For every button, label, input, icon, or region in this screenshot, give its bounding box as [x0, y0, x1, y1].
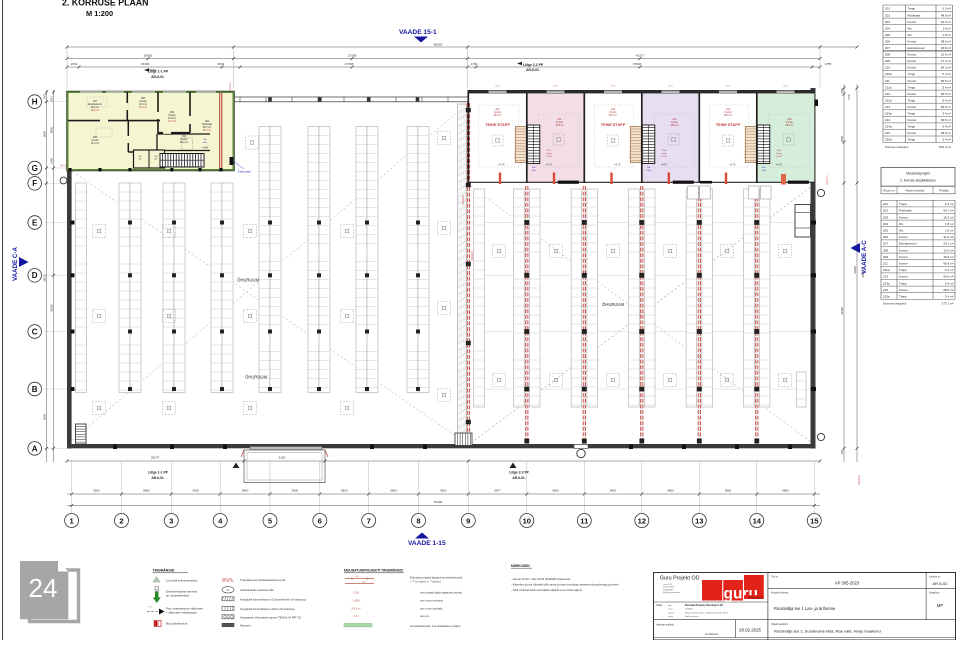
svg-text:211a: 211a — [546, 150, 551, 152]
svg-text:reg nr: reg nr — [668, 609, 673, 611]
svg-text:66.6 m²: 66.6 m² — [670, 124, 678, 127]
svg-text:48.6 m²: 48.6 m² — [941, 13, 951, 17]
svg-text:Kontor: Kontor — [908, 39, 917, 43]
svg-text:66.6 m²: 66.6 m² — [555, 124, 563, 127]
svg-text:1.8 m²: 1.8 m² — [945, 229, 954, 233]
svg-text:aadress: aadress — [668, 612, 674, 614]
svg-text:Trepp: Trepp — [908, 112, 916, 116]
svg-text:TEINE ETAPP: TEINE ETAPP — [716, 123, 741, 127]
svg-text:uue ruumi nimetus: uue ruumi nimetus — [420, 599, 444, 603]
svg-text:209: 209 — [883, 255, 888, 259]
svg-text:52.2 m²: 52.2 m² — [203, 129, 211, 132]
svg-text:66.5 m²: 66.5 m² — [941, 118, 951, 122]
svg-text:Kergplokk konstruktsioon (Colu: Kergplokk konstruktsioon (Columbia-kivi … — [240, 597, 306, 601]
svg-text:87400: 87400 — [434, 500, 443, 504]
svg-text:1591: 1591 — [71, 62, 78, 66]
svg-text:204: 204 — [883, 222, 888, 226]
svg-text:31.0 m²: 31.0 m² — [943, 235, 953, 239]
svg-text:211: 211 — [885, 79, 890, 83]
svg-text:D: D — [32, 271, 38, 280]
svg-text:15: 15 — [810, 516, 819, 525]
svg-text:Puhkeala: Puhkeala — [899, 209, 912, 213]
svg-text:Lai tn 2-74: Lai tn 2-74 — [663, 583, 672, 586]
svg-text:205: 205 — [883, 229, 888, 233]
svg-text:8500: 8500 — [43, 414, 47, 420]
svg-text:207: 207 — [885, 46, 890, 50]
svg-text:r.*** ja rajata vt: **tuletud: r.*** ja rajata vt: **tuletud — [410, 580, 441, 584]
svg-text:50.7 m²: 50.7 m² — [943, 209, 953, 213]
svg-text:19962: 19962 — [144, 54, 153, 58]
svg-text:5.4 m²: 5.4 m² — [945, 268, 954, 272]
svg-text:6kg pulberkustuti: 6kg pulberkustuti — [166, 622, 188, 626]
svg-text:5.4 m²: 5.4 m² — [942, 138, 951, 142]
svg-text:MP: MP — [937, 603, 943, 608]
svg-text:28.02.2025: 28.02.2025 — [739, 628, 762, 633]
svg-text:Ivo Rebane: Ivo Rebane — [705, 632, 719, 636]
svg-text:REI(120): REI(120) — [858, 475, 861, 485]
svg-text:5.3 m²: 5.3 m² — [945, 202, 954, 206]
svg-text:66.5 m²: 66.5 m² — [724, 114, 732, 117]
svg-text:Projekti nimetus:: Projekti nimetus: — [771, 592, 789, 595]
svg-text:Lõige 2-2 PP: Lõige 2-2 PP — [523, 63, 544, 67]
svg-text:5.4 m²: 5.4 m² — [945, 281, 954, 285]
svg-text:37840: 37840 — [633, 62, 642, 66]
svg-text:1-200: 1-200 — [353, 592, 360, 595]
svg-text:12.6 m²: 12.6 m² — [139, 106, 147, 109]
svg-text:5.4 m²: 5.4 m² — [942, 98, 951, 102]
svg-text:Trepp: Trepp — [899, 281, 907, 285]
svg-text:14: 14 — [753, 516, 762, 525]
svg-text:12: 12 — [638, 516, 646, 525]
svg-text:204: 204 — [885, 26, 890, 30]
svg-text:Trepp: Trepp — [908, 98, 916, 102]
svg-text:+4.80: +4.80 — [202, 148, 209, 150]
svg-text:20.1 m²: 20.1 m² — [943, 242, 953, 246]
svg-text:Esindusruum: Esindusruum — [908, 46, 926, 50]
svg-text:Muudatusprojekt: Muudatusprojekt — [906, 172, 930, 176]
svg-text:Roosivälja tee 1 Lao- ja äriho: Roosivälja tee 1 Lao- ja ärihoone — [774, 606, 836, 611]
svg-text:Roosivälja tee 1, Soodevahe kü: Roosivälja tee 1, Soodevahe küla, Rae va… — [774, 629, 881, 634]
svg-text:16.9 m²: 16.9 m² — [943, 255, 953, 259]
svg-text:205: 205 — [885, 33, 890, 37]
svg-text:E: E — [32, 218, 38, 227]
svg-text:202: 202 — [883, 209, 888, 213]
svg-text:4602: 4602 — [495, 86, 501, 88]
svg-text:Vastutav arhitekt:: Vastutav arhitekt: — [656, 624, 675, 627]
svg-text:Trepp: Trepp — [899, 295, 907, 299]
svg-text:+4.70: +4.70 — [614, 164, 621, 167]
svg-text:5800: 5800 — [242, 489, 249, 493]
svg-text:4602: 4602 — [726, 86, 732, 88]
svg-text:Puhkeala: Puhkeala — [908, 13, 921, 17]
svg-text:6800: 6800 — [552, 489, 559, 493]
svg-text:4602: 4602 — [553, 86, 559, 88]
svg-text:5800: 5800 — [341, 489, 348, 493]
svg-text:22m: 22m — [647, 170, 651, 172]
svg-text:17.4 m²: 17.4 m² — [941, 59, 951, 63]
svg-text:TEINE ETAPP: TEINE ETAPP — [601, 123, 626, 127]
svg-text:Staadium:: Staadium: — [929, 592, 940, 595]
svg-text:211a: 211a — [885, 85, 892, 89]
svg-text:Kontor: Kontor — [908, 79, 917, 83]
svg-text:26070: 26070 — [43, 274, 47, 282]
svg-text:202: 202 — [885, 13, 890, 17]
svg-text:12.4 m²: 12.4 m² — [943, 248, 953, 252]
svg-text:4602: 4602 — [668, 86, 674, 88]
svg-text:Kontor: Kontor — [908, 53, 917, 57]
svg-text:A: A — [32, 444, 38, 453]
svg-text:5.4 m²: 5.4 m² — [776, 155, 782, 158]
svg-text:11: 11 — [580, 516, 589, 525]
svg-text:uue ruumi pindala,: uue ruumi pindala, — [420, 607, 443, 611]
svg-text:konstruktsioonid, mis ehitatak: konstruktsioonid, mis ehitatakse II etap… — [410, 624, 461, 628]
svg-text:206: 206 — [885, 39, 890, 43]
svg-text:13: 13 — [695, 516, 703, 525]
svg-text:Trepp: Trepp — [908, 85, 916, 89]
svg-text:9600: 9600 — [50, 127, 54, 133]
svg-text:68.6 m²: 68.6 m² — [941, 131, 951, 135]
svg-text:Ruumi nimetus: Ruumi nimetus — [906, 188, 925, 192]
svg-text:1501: 1501 — [43, 93, 47, 99]
svg-text:Kontor: Kontor — [908, 20, 917, 24]
svg-text:Töö nr:: Töö nr: — [771, 576, 779, 579]
svg-text:- Hoone ±0.00 = abs 39.60 (EH2: - Hoone ±0.00 = abs 39.60 (EH2000 süstee… — [511, 577, 570, 581]
svg-text:AP 305-2023: AP 305-2023 — [835, 581, 860, 586]
svg-text:Kontor: Kontor — [899, 235, 908, 239]
svg-text:31.0 m²: 31.0 m² — [91, 142, 99, 145]
svg-text:1320: 1320 — [841, 88, 844, 94]
svg-text:66.6 m²: 66.6 m² — [943, 262, 953, 266]
svg-text:215a: 215a — [885, 138, 892, 142]
svg-text:Suitsuluukide avamise lüliti: Suitsuluukide avamise lüliti — [240, 588, 274, 592]
svg-text:5800: 5800 — [292, 489, 299, 493]
svg-text:Trepp: Trepp — [776, 152, 782, 155]
svg-text:e-post: e-post — [668, 615, 673, 618]
svg-text:215: 215 — [885, 131, 890, 135]
svg-text:info@guruprojekt.ee: info@guruprojekt.ee — [663, 591, 680, 594]
svg-text:203: 203 — [885, 20, 890, 24]
svg-text:Kolonnaad: Kolonnaad — [238, 169, 251, 173]
svg-text:uus arv: uus arv — [420, 614, 430, 618]
svg-text:1782: 1782 — [471, 62, 478, 66]
svg-text:Ruumi nr: Ruumi nr — [883, 188, 894, 192]
svg-text:30160: 30160 — [50, 304, 54, 312]
svg-text:215: 215 — [883, 288, 888, 292]
svg-text:5800: 5800 — [143, 489, 150, 493]
svg-text:guru: guru — [724, 585, 758, 602]
svg-text:9160: 9160 — [279, 456, 286, 460]
svg-text:212a: 212a — [885, 98, 892, 102]
svg-text:Wc: Wc — [899, 229, 904, 233]
svg-text:206.5 m²: 206.5 m² — [351, 608, 361, 611]
svg-text:24: 24 — [29, 573, 58, 603]
svg-text:2. Korruse eksplikatsioon: 2. Korruse eksplikatsioon — [900, 179, 936, 183]
svg-text:19.2 m²: 19.2 m² — [180, 141, 188, 144]
svg-text:TEINE ETAPP: TEINE ETAPP — [485, 123, 510, 127]
svg-text:C: C — [32, 327, 38, 336]
svg-text:27358: 27358 — [345, 62, 354, 66]
svg-text:8: 8 — [416, 516, 420, 525]
svg-text:Kontor: Kontor — [908, 118, 917, 122]
svg-text:Trepp: Trepp — [908, 72, 916, 76]
svg-text:5.4 m²: 5.4 m² — [546, 155, 552, 158]
svg-text:Wc: Wc — [908, 33, 913, 37]
svg-text:213: 213 — [885, 105, 890, 109]
svg-text:1755: 1755 — [825, 62, 832, 66]
svg-text:Nimi: Nimi — [668, 605, 672, 607]
svg-text:213: 213 — [883, 275, 888, 279]
svg-text:+4.70: +4.70 — [498, 164, 505, 167]
svg-text:Wc: Wc — [155, 159, 158, 161]
svg-text:41377: 41377 — [636, 54, 645, 58]
svg-text:REI(120): REI(120) — [222, 577, 233, 581]
svg-text:9400: 9400 — [840, 136, 844, 142]
svg-text:Kontor: Kontor — [908, 66, 917, 70]
svg-text:PROJEKT: PROJEKT — [749, 595, 764, 599]
svg-text:2.4600: 2.4600 — [352, 600, 360, 603]
svg-text:11560452: 11560452 — [685, 609, 693, 611]
svg-text:G: G — [32, 164, 38, 173]
svg-text:Objekti asukoht:: Objekti asukoht: — [771, 623, 788, 626]
svg-text:MUUDATUSPROJEKTI TINGMÄRGID: MUUDATUSPROJEKTI TINGMÄRGID — [344, 569, 403, 573]
svg-text:12.6 m²: 12.6 m² — [941, 53, 951, 57]
svg-text:Roosiaia Property Developers O: Roosiaia Property Developers OÜ — [685, 604, 724, 607]
svg-text:AR-6-01.: AR-6-01. — [151, 75, 165, 79]
svg-text:Trepp: Trepp — [899, 268, 907, 272]
svg-text:Kergplokk konstruktsioon (Fibo: Kergplokk konstruktsioon (Fibo või analo… — [240, 607, 294, 611]
svg-text:6800: 6800 — [610, 489, 617, 493]
svg-text:213a: 213a — [885, 112, 892, 116]
svg-text:Kontor: Kontor — [899, 275, 908, 279]
svg-text:9: 9 — [466, 516, 470, 525]
svg-text:9 m: 9 m — [148, 607, 152, 609]
svg-text:Trepp: Trepp — [908, 7, 916, 11]
svg-text:33m: 33m — [203, 142, 207, 144]
svg-text:F: F — [32, 179, 37, 188]
svg-text:Trepp: Trepp — [908, 138, 916, 142]
svg-text:5923: 5923 — [93, 489, 100, 493]
svg-text:Wc: Wc — [908, 26, 913, 30]
svg-text:- Kõik mõõdud tuleb kontrollid: - Kõik mõõdud tuleb kontrollida objektil… — [511, 588, 582, 592]
svg-text:5.4 m²: 5.4 m² — [942, 85, 951, 89]
svg-text:210a: 210a — [885, 72, 892, 76]
svg-text:214: 214 — [885, 118, 890, 122]
svg-text:Kontor: Kontor — [908, 92, 917, 96]
svg-text:10: 10 — [523, 516, 531, 525]
svg-text:Kontor: Kontor — [908, 59, 917, 63]
svg-text:5800: 5800 — [193, 489, 200, 493]
svg-text:AR-5-02.: AR-5-02. — [932, 581, 948, 586]
svg-text:+4.70: +4.70 — [546, 164, 553, 167]
svg-text:66.5 m²: 66.5 m² — [609, 114, 617, 117]
svg-text:B: B — [32, 385, 38, 394]
svg-text:212: 212 — [885, 92, 890, 96]
svg-text:41000: 41000 — [853, 266, 857, 274]
svg-text:Kontor: Kontor — [899, 248, 908, 252]
svg-text:20073: 20073 — [151, 456, 160, 460]
svg-text:ÕHURUUM: ÕHURUUM — [602, 302, 624, 307]
svg-text:VAADE C-A: VAADE C-A — [12, 247, 19, 281]
svg-text:2: 2 — [119, 516, 123, 525]
svg-text:Lõige 2-2 PP: Lõige 2-2 PP — [509, 471, 530, 475]
svg-text:7: 7 — [367, 516, 371, 525]
svg-text:+ väljumiste vahekaugus: + väljumiste vahekaugus — [166, 611, 197, 615]
svg-text:Harju maakond, Tallinn, Vabadu: Harju maakond, Tallinn, Vabaduse pst 174… — [685, 611, 728, 614]
svg-text:5700: 5700 — [848, 94, 851, 100]
svg-text:19.2 m²: 19.2 m² — [941, 20, 951, 24]
svg-text:Kontor: Kontor — [908, 131, 917, 135]
svg-text:214a: 214a — [885, 125, 892, 129]
svg-text:REI(120): REI(120) — [462, 195, 465, 205]
svg-text:4602: 4602 — [611, 86, 617, 88]
svg-text:1.8 m²: 1.8 m² — [942, 26, 951, 30]
svg-text:Korruse netopind:: Korruse netopind: — [885, 145, 909, 149]
svg-text:Kontor: Kontor — [899, 255, 908, 259]
svg-text:-5 m²: -5 m² — [353, 615, 359, 618]
svg-text:AR-6-01.: AR-6-01. — [526, 68, 540, 72]
svg-text:Trepp: Trepp — [661, 152, 667, 155]
svg-text:210: 210 — [885, 66, 890, 70]
svg-text:M 1:200: M 1:200 — [86, 9, 113, 18]
svg-text:VAADE A-C: VAADE A-C — [861, 240, 868, 274]
svg-text:AR-6-01.: AR-6-01. — [512, 476, 525, 480]
svg-text:info@rootsile.ee: info@rootsile.ee — [685, 615, 699, 618]
svg-text:2411: 2411 — [50, 96, 54, 102]
svg-text:Tuleplaanuva tuletõkkesektsioo: Tuleplaanuva tuletõkkesektsiooni piir — [240, 578, 286, 582]
svg-text:ÕHURUUM: ÕHURUUM — [237, 278, 259, 283]
svg-text:211a: 211a — [883, 268, 890, 272]
svg-text:22m: 22m — [762, 170, 766, 172]
svg-text:5.4 m²: 5.4 m² — [945, 295, 954, 299]
svg-text:38.0 m²: 38.0 m² — [941, 39, 951, 43]
svg-text:1.8 m²: 1.8 m² — [945, 222, 954, 226]
svg-text:5800: 5800 — [440, 489, 447, 493]
svg-text:VAADE 15-1: VAADE 15-1 — [399, 29, 437, 36]
svg-text:MÄRKUSED:: MÄRKUSED: — [511, 564, 530, 568]
svg-text:Guru Projekt OÜ: Guru Projekt OÜ — [660, 575, 700, 582]
svg-text:Kontor: Kontor — [899, 215, 908, 219]
svg-text:arv (projekteeritav): arv (projekteeritav) — [166, 594, 189, 598]
svg-text:Trepp: Trepp — [546, 152, 552, 155]
svg-text:Kontor: Kontor — [899, 262, 908, 266]
svg-text:Kontor: Kontor — [899, 288, 908, 292]
svg-text:5877: 5877 — [494, 489, 501, 493]
svg-text:32450: 32450 — [840, 307, 844, 315]
svg-text:68.6 m²: 68.6 m² — [785, 124, 793, 127]
svg-text:TINGMÄRGID: TINGMÄRGID — [153, 569, 175, 573]
svg-text:Wc: Wc — [139, 159, 142, 161]
svg-text:208: 208 — [885, 53, 890, 57]
svg-text:2. KORRUSE PLAAN: 2. KORRUSE PLAAN — [62, 0, 149, 7]
svg-text:uue projekti järgi rajatavad s: uue projekti järgi rajatavad seinad — [420, 591, 462, 595]
svg-text:1490: 1490 — [50, 158, 54, 164]
svg-text:206: 206 — [883, 235, 888, 239]
svg-text:AR-6-01.: AR-6-01. — [151, 476, 164, 480]
svg-text:Tallinn 10133: Tallinn 10133 — [663, 587, 674, 589]
svg-text:208: 208 — [883, 248, 888, 252]
svg-text:209: 209 — [885, 59, 890, 63]
svg-text:5.4 m²: 5.4 m² — [942, 72, 951, 76]
svg-text:66.6 m²: 66.6 m² — [943, 275, 953, 279]
svg-text:207: 207 — [883, 242, 888, 246]
svg-text:6: 6 — [318, 516, 322, 525]
svg-text:ÕHURUUM: ÕHURUUM — [245, 375, 267, 380]
svg-text:211: 211 — [883, 262, 888, 266]
svg-text:6800: 6800 — [667, 489, 674, 493]
svg-text:Kergpaneel (Sandwich-paneel TE: Kergpaneel (Sandwich-paneel TENAX W PIR … — [240, 615, 301, 619]
svg-text:VAADE 1-15: VAADE 1-15 — [408, 540, 446, 547]
svg-text:5800: 5800 — [390, 489, 397, 493]
svg-text:5.4 m²: 5.4 m² — [942, 112, 951, 116]
svg-text:22m: 22m — [532, 170, 536, 172]
svg-text:86302: 86302 — [434, 42, 443, 46]
svg-text:- Käesolev joonis tühistab kõi: - Käesolev joonis tühistab kõik sama joo… — [511, 583, 619, 587]
svg-text:20.8 m²: 20.8 m² — [941, 46, 951, 50]
svg-text:27358: 27358 — [348, 54, 357, 58]
svg-text:Kontor: Kontor — [908, 105, 917, 109]
svg-text:REI(120): REI(120) — [827, 175, 829, 184]
svg-text:+4.70: +4.70 — [661, 164, 668, 167]
svg-text:215a: 215a — [883, 295, 890, 299]
svg-text:8090: 8090 — [43, 131, 47, 137]
svg-text:201: 201 — [885, 7, 890, 11]
svg-text:203: 203 — [883, 215, 888, 219]
svg-text:tel 648 4619: tel 648 4619 — [663, 588, 673, 591]
svg-text:377.1 m²: 377.1 m² — [942, 302, 954, 306]
svg-text:Tellija:: Tellija: — [656, 604, 663, 607]
svg-text:20.6 m²: 20.6 m² — [91, 109, 99, 112]
svg-text:19.2 m²: 19.2 m² — [943, 215, 953, 219]
svg-text:Wc: Wc — [899, 222, 904, 226]
svg-text:+4.70: +4.70 — [776, 164, 783, 167]
svg-text:15400: 15400 — [141, 62, 150, 66]
svg-text:66.5 m²: 66.5 m² — [941, 92, 951, 96]
svg-text:1.8 m²: 1.8 m² — [942, 33, 951, 37]
svg-text:Lõige 1-1 PP: Lõige 1-1 PP — [148, 471, 169, 475]
svg-text:Joonise nr:: Joonise nr: — [929, 576, 941, 579]
svg-text:Trepp: Trepp — [908, 125, 916, 129]
svg-text:5.4 m²: 5.4 m² — [661, 155, 667, 158]
svg-text:215a: 215a — [776, 150, 782, 152]
svg-text:Kipssein: Kipssein — [240, 623, 251, 627]
svg-text:H: H — [32, 98, 38, 107]
svg-text:562.4 m²: 562.4 m² — [939, 145, 951, 149]
svg-text:500: 500 — [841, 449, 844, 454]
svg-text:213a: 213a — [883, 281, 890, 285]
svg-text:Korruse netopind:: Korruse netopind: — [883, 302, 907, 306]
svg-text:66.2 m²: 66.2 m² — [941, 66, 951, 70]
svg-text:201: 201 — [883, 202, 888, 206]
svg-text:Loomulik suitsueemaldus: Loomulik suitsueemaldus — [166, 579, 198, 583]
svg-text:6800: 6800 — [782, 489, 789, 493]
svg-text:2601: 2601 — [218, 62, 225, 66]
svg-text:3: 3 — [169, 516, 173, 525]
svg-text:66.5 m²: 66.5 m² — [941, 79, 951, 83]
svg-text:5.3 m²: 5.3 m² — [942, 7, 951, 11]
svg-text:17.4 m²: 17.4 m² — [168, 120, 176, 123]
svg-text:4602: 4602 — [783, 86, 789, 88]
svg-text:+4.70: +4.70 — [729, 164, 736, 167]
svg-text:6800: 6800 — [725, 489, 732, 493]
svg-text:Esindusruum: Esindusruum — [899, 242, 917, 246]
svg-text:5.4 m²: 5.4 m² — [942, 125, 951, 129]
svg-text:Pindala: Pindala — [939, 188, 949, 192]
svg-text:68.6 m²: 68.6 m² — [943, 288, 953, 292]
svg-text:66.5 m²: 66.5 m² — [941, 105, 951, 109]
svg-text:213a: 213a — [661, 150, 667, 152]
svg-text:Trepp: Trepp — [899, 202, 907, 206]
svg-text:66.2 m²: 66.2 m² — [493, 114, 501, 117]
